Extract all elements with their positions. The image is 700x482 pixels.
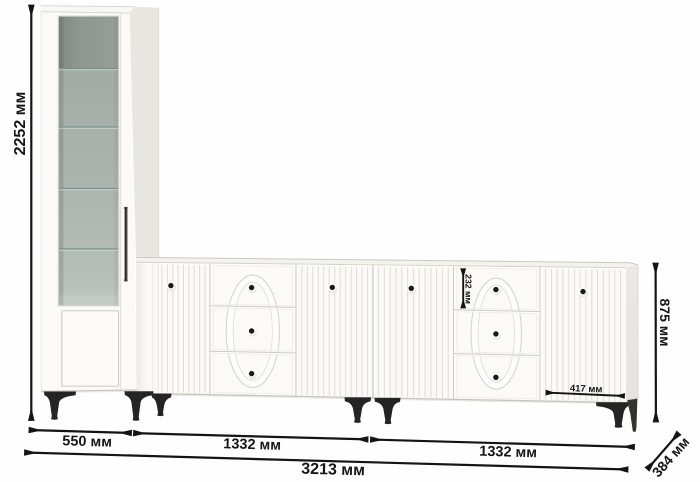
svg-text:417 мм: 417 мм — [570, 383, 603, 395]
svg-text:1332 мм: 1332 мм — [223, 436, 281, 454]
svg-text:1332 мм: 1332 мм — [479, 444, 537, 462]
svg-text:550 мм: 550 мм — [62, 433, 112, 450]
svg-text:2252 мм: 2252 мм — [12, 92, 29, 156]
svg-text:3213 мм: 3213 мм — [301, 461, 365, 480]
svg-text:232 мм: 232 мм — [463, 274, 473, 304]
svg-text:875 мм: 875 мм — [657, 299, 673, 347]
